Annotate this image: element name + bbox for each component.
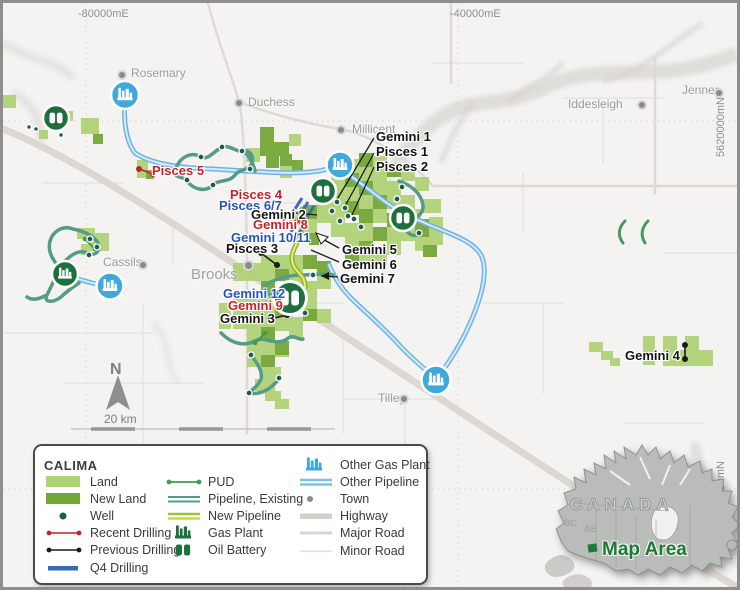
- town-swatch: [298, 493, 340, 505]
- legend-column-3: Other Gas Plant Other Pipeline Town High…: [298, 456, 430, 559]
- legend-row: Minor Road: [298, 542, 430, 559]
- minor-road-swatch: [298, 545, 340, 557]
- legend-column-1: Land New Land Well Recent Drilling Previ…: [44, 473, 180, 576]
- legend-row: Other Pipeline: [298, 473, 430, 490]
- legend-label: Pipeline, Existing: [208, 492, 303, 506]
- grid-label-northing: 5620000mN: [715, 97, 727, 157]
- pipelines: [27, 99, 648, 393]
- grid-label-easting: -40000mE: [450, 8, 501, 20]
- legend-label: PUD: [208, 475, 234, 489]
- other-pipeline-swatch: [298, 476, 340, 488]
- legend-title: CALIMA: [44, 458, 98, 473]
- legend-label: Other Pipeline: [340, 475, 419, 489]
- legend-row: PUD: [164, 473, 303, 490]
- legend-label: Highway: [340, 509, 388, 523]
- legend-row: Oil Battery: [164, 542, 303, 559]
- pud-swatch: [164, 476, 208, 488]
- legend-column-2: PUD Pipeline, Existing New Pipeline Gas …: [164, 473, 303, 559]
- legend-label: Minor Road: [340, 544, 405, 558]
- recent-drilling-swatch: [44, 527, 90, 539]
- new-land-swatch: [44, 492, 90, 505]
- other-gas-plant-icon: [422, 366, 451, 395]
- scale-bar-label: 20 km: [104, 412, 137, 426]
- legend-label: Gas Plant: [208, 526, 263, 540]
- major-road-swatch: [298, 527, 340, 539]
- legend-row: New Land: [44, 490, 180, 507]
- legend-label: Other Gas Plant: [340, 458, 430, 472]
- oil-battery-icon: [390, 205, 416, 231]
- legend-row: Major Road: [298, 525, 430, 542]
- legend-row: Well: [44, 507, 180, 524]
- legend-label: Q4 Drilling: [90, 561, 148, 575]
- map-frame: RosemaryDuchessMillicentIddesleighJenner…: [0, 0, 740, 590]
- map-area-label: Map Area: [602, 539, 687, 561]
- north-arrow: [106, 375, 130, 410]
- q4-drilling-swatch: [44, 562, 90, 574]
- grid-label-easting: -80000mE: [78, 8, 129, 20]
- well-swatch: [44, 510, 90, 522]
- legend-label: Major Road: [340, 526, 405, 540]
- other-gas-plant-swatch: [298, 456, 340, 474]
- legend-label: New Pipeline: [208, 509, 281, 523]
- other-gas-plant-icon: [327, 152, 354, 179]
- gas-plant-icon: [52, 261, 78, 287]
- legend-row: Pipeline, Existing: [164, 490, 303, 507]
- inset-province-ab: AB: [584, 524, 597, 534]
- legend-label: Well: [90, 509, 114, 523]
- oil-battery-icon: [310, 178, 336, 204]
- legend-row: New Pipeline: [164, 507, 303, 524]
- legend-label: New Land: [90, 492, 146, 506]
- map-area-marker: [587, 543, 597, 552]
- other-gas-plant-icon: [97, 273, 124, 300]
- legend-label: Land: [90, 475, 118, 489]
- legend-row: Highway: [298, 508, 430, 525]
- oil-battery-swatch: [164, 542, 208, 558]
- legend-label: Recent Drilling: [90, 526, 171, 540]
- legend-label: Oil Battery: [208, 543, 266, 557]
- oil-battery-icon: [43, 105, 69, 131]
- legend-label: Town: [340, 492, 369, 506]
- legend-row: Town: [298, 490, 430, 507]
- inset-province-bc: BC: [564, 518, 577, 528]
- legend-row: Q4 Drilling: [44, 559, 180, 576]
- previous-drilling-swatch: [44, 544, 90, 556]
- legend-row: Other Gas Plant: [298, 456, 430, 473]
- legend-row: Previous Drilling: [44, 542, 180, 559]
- north-label: N: [110, 361, 122, 379]
- gas-plant-icon: [274, 282, 307, 315]
- gas-plant-swatch: [164, 524, 208, 542]
- legend-row: Land: [44, 473, 180, 490]
- other-gas-plant-icon: [111, 81, 139, 109]
- legend-box: CALIMA Land New Land Well Recent Drillin…: [33, 444, 428, 585]
- highway-swatch: [298, 510, 340, 522]
- pipeline-existing-swatch: [164, 493, 208, 505]
- legend-row: Gas Plant: [164, 525, 303, 542]
- new-pipeline-swatch: [164, 510, 208, 522]
- inset-country-label: CANADA: [570, 495, 674, 515]
- land-swatch: [44, 475, 90, 488]
- legend-row: Recent Drilling: [44, 525, 180, 542]
